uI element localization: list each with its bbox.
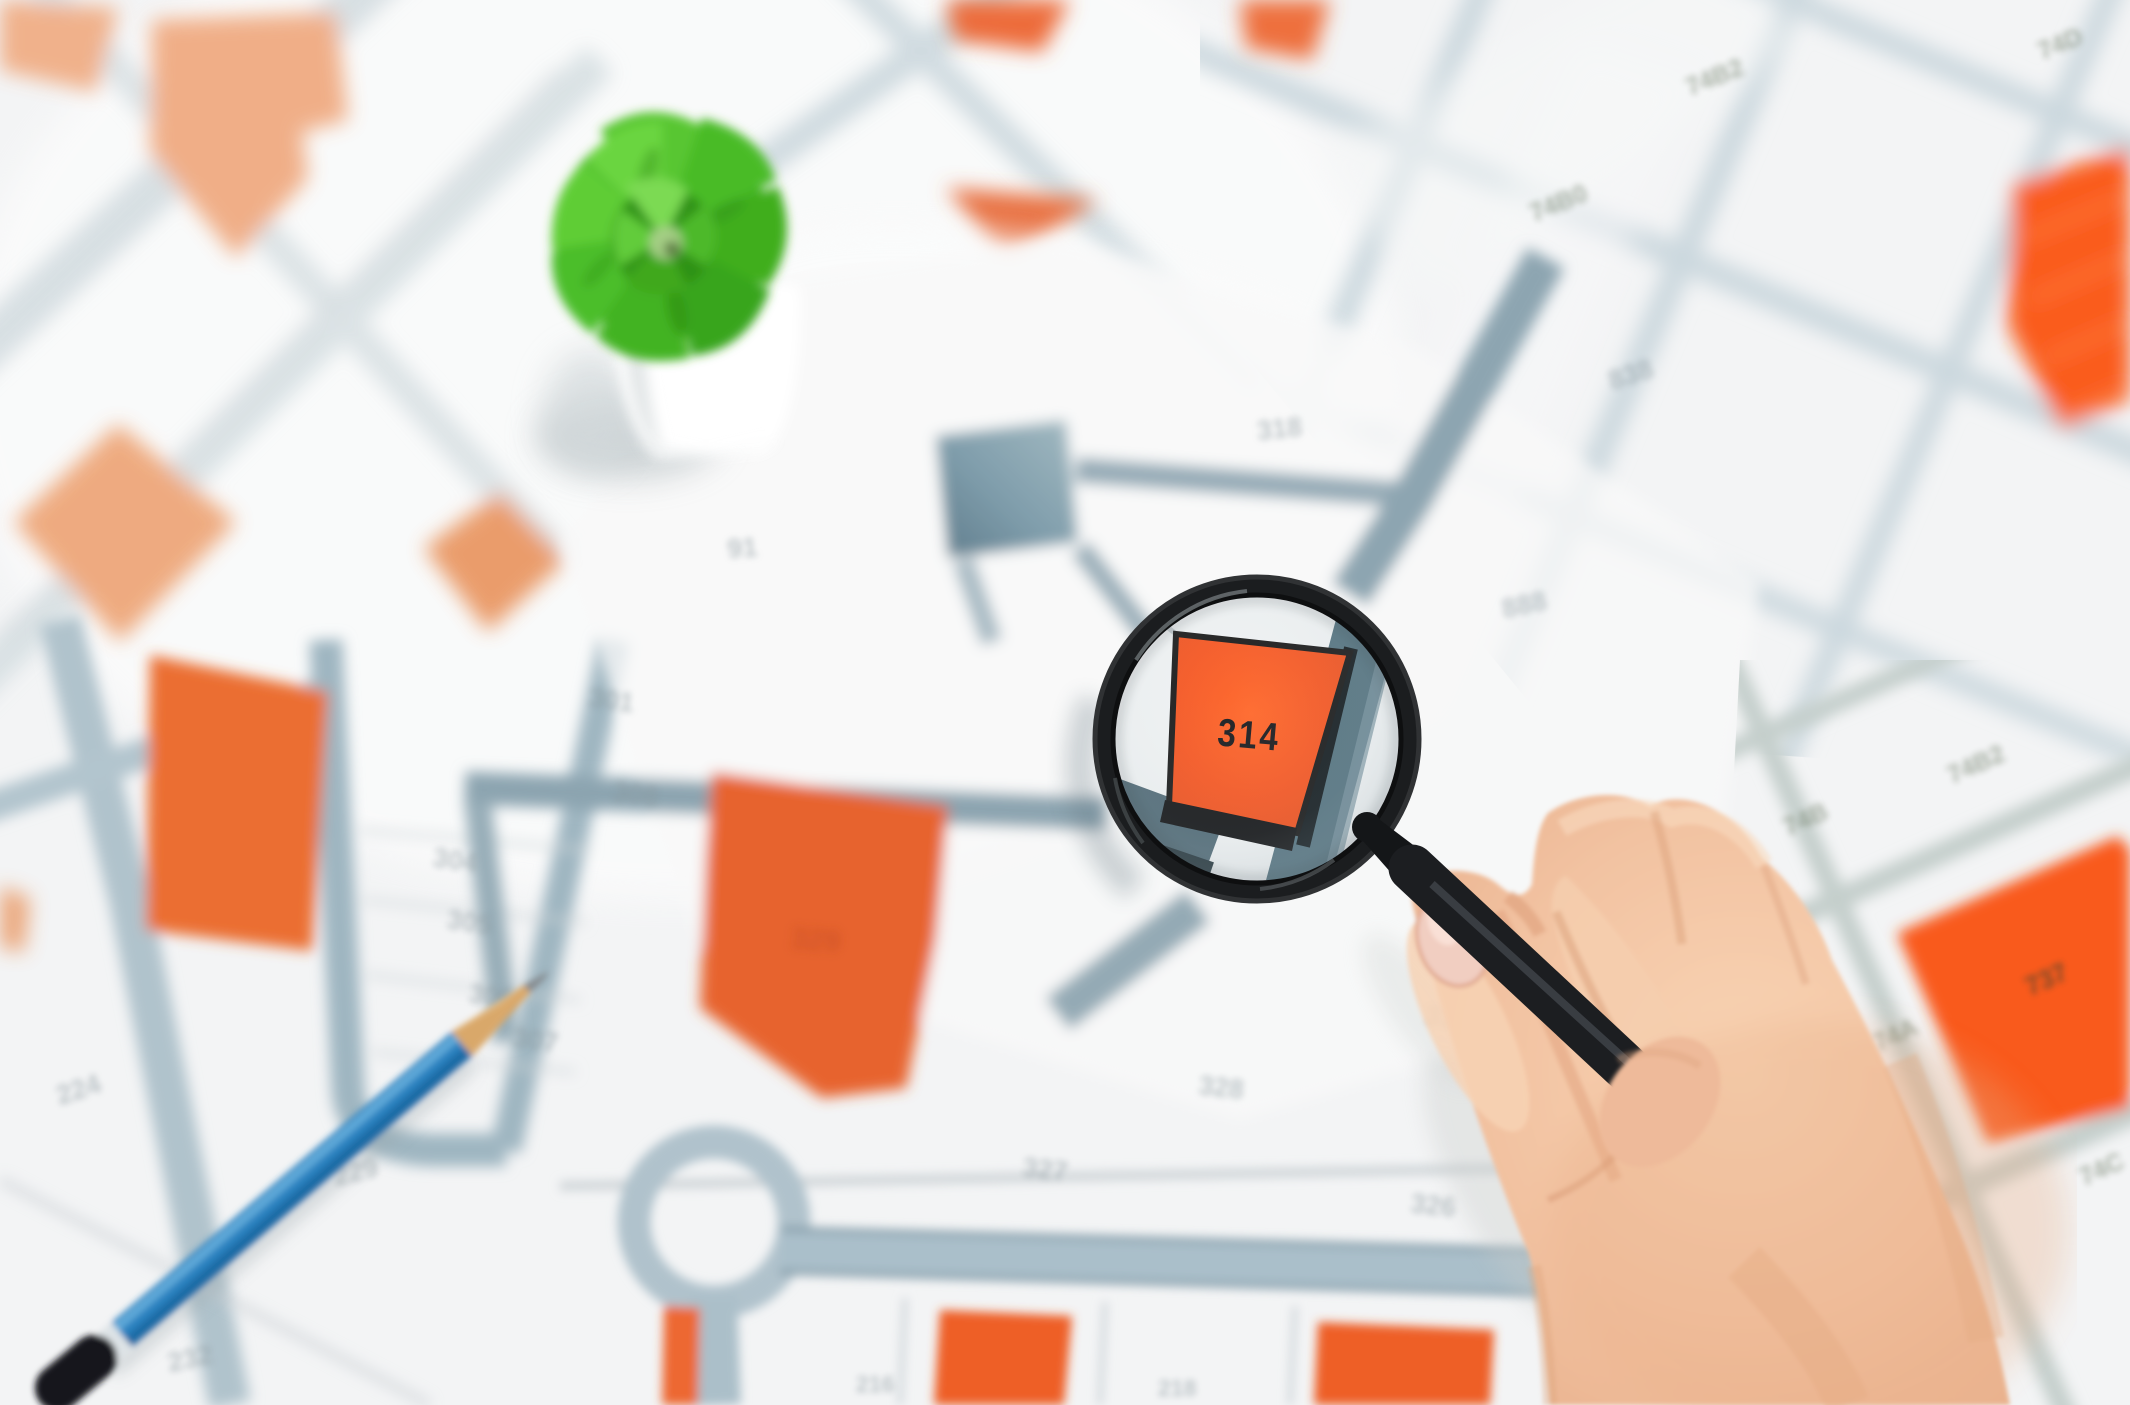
svg-text:305: 305 [445,904,494,940]
svg-text:308: 308 [611,776,660,812]
svg-text:329: 329 [790,922,842,958]
svg-text:216: 216 [856,1371,894,1397]
svg-text:318: 318 [1255,411,1303,446]
svg-text:91: 91 [726,532,758,564]
svg-text:326: 326 [1409,1188,1457,1223]
svg-text:301: 301 [587,682,636,718]
svg-text:304: 304 [431,842,480,878]
svg-text:327: 327 [1021,1152,1069,1187]
svg-text:328: 328 [1197,1070,1245,1105]
svg-text:307: 307 [511,1022,560,1058]
svg-text:218: 218 [1158,1375,1197,1401]
